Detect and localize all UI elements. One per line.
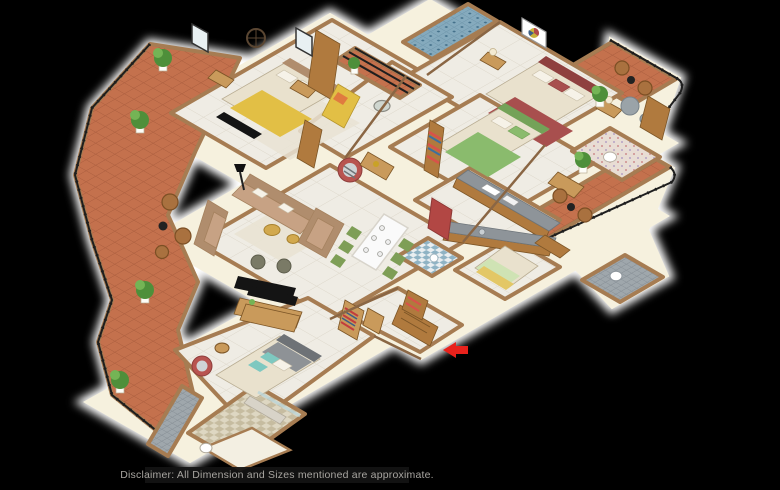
- coffee-table: [287, 235, 299, 244]
- floor-plan-image: Disclaimer: All Dimension and Sizes ment…: [0, 0, 780, 490]
- pouf: [277, 259, 291, 273]
- toilet: [200, 443, 212, 453]
- pouf: [251, 255, 265, 269]
- toilet: [610, 271, 622, 281]
- disclaimer-text: Disclaimer: All Dimension and Sizes ment…: [120, 469, 434, 481]
- bathroom-right: [604, 152, 617, 162]
- red-lounge-chair: [338, 158, 362, 182]
- floor-plan-canvas: [0, 0, 780, 490]
- bathroom-right-lower: [610, 271, 622, 281]
- round-table: [215, 343, 229, 353]
- sink: [479, 229, 485, 235]
- wall-clock: [247, 29, 265, 47]
- red-accent-chair: [192, 356, 212, 376]
- toilet: [604, 152, 617, 162]
- washbasin: [430, 254, 438, 262]
- disclaimer-bar: Disclaimer: All Dimension and Sizes ment…: [145, 467, 409, 483]
- desk-plant: [249, 299, 255, 305]
- coffee-table: [264, 225, 280, 236]
